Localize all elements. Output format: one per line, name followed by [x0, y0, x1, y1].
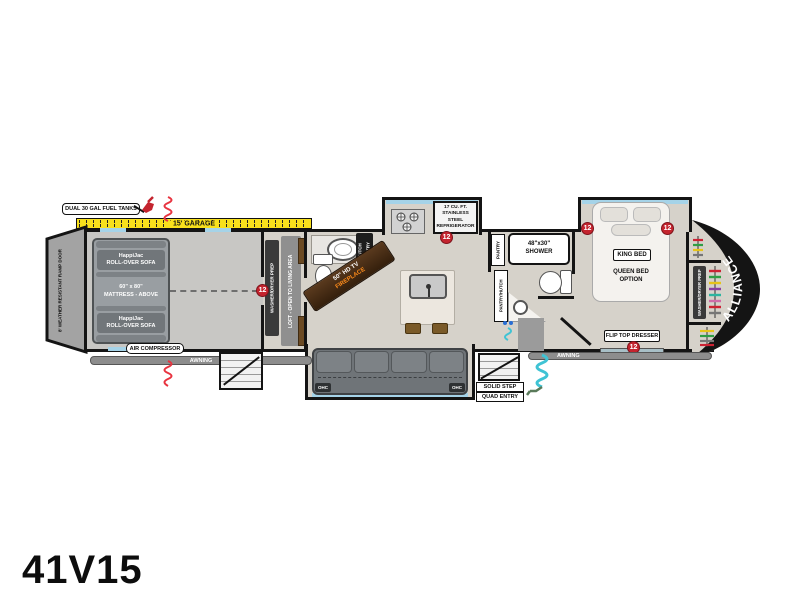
corner-sink: [513, 300, 528, 315]
sofa-top-label: HappiJac ROLL-OVER SOFA: [97, 250, 165, 270]
mattress-line1: 60" x 80": [119, 284, 143, 291]
pantry-hutch-label: PANTRY/HUTCH: [494, 271, 508, 321]
stove-burners-icon: [391, 209, 425, 234]
sofa-cushion: [316, 351, 352, 373]
wall-segment: [686, 232, 689, 349]
sofa-bottom-label: HappiJac ROLL-OVER SOFA: [97, 313, 165, 333]
toilet-tank: [313, 254, 333, 265]
steps-diagonal: [480, 356, 518, 379]
entry-label-line2: QUAD ENTRY: [476, 392, 524, 402]
stool: [405, 323, 421, 334]
sofa-cushion: [354, 351, 390, 373]
wall-segment: [304, 232, 307, 278]
awning-left: AWNING: [90, 356, 312, 365]
sofa-top-line1: HappiJac: [119, 253, 143, 260]
spring-icon: [162, 196, 175, 222]
ramp-door-label: 8' WEATHER RESISTANT RAMP DOOR: [50, 240, 70, 342]
slide-marker: 12: [256, 284, 269, 297]
sofa-cushions: [316, 351, 464, 373]
sofa-cushion: [391, 351, 427, 373]
spring-icon: [162, 360, 175, 388]
water-hose-icon: [520, 353, 560, 397]
pillow: [600, 207, 628, 222]
model-title: 41V15: [22, 548, 143, 593]
faucet-icon: [428, 288, 430, 297]
pantry-label: PANTRY: [491, 235, 505, 265]
sofa-cushion: [429, 351, 465, 373]
pillow: [633, 207, 661, 222]
utility-hookup-icon: [501, 320, 515, 346]
washer-dryer-prep-label-bedroom: WASHER/DRYER PREP: [693, 267, 706, 318]
queen-line2: OPTION: [619, 276, 642, 284]
pillow: [611, 224, 651, 236]
entry-mat: [518, 318, 544, 351]
sofa-bolster: [96, 335, 166, 342]
slide-marker: 12: [661, 222, 674, 235]
shower-line2: SHOWER: [526, 249, 553, 257]
garage-steps: [219, 352, 263, 390]
sofa-divider: [96, 272, 166, 277]
mattress-label: 60" x 80" MATTRESS - ABOVE: [97, 279, 165, 304]
wall-segment: [261, 232, 264, 277]
king-bed-label: KING BED: [613, 249, 651, 261]
fridge-line2: STAINLESS STEEL: [435, 211, 476, 224]
air-compressor-label: AIR COMPRESSOR: [126, 343, 184, 354]
entry-steps: [478, 353, 520, 381]
entry-label-line1: SOLID STEP: [476, 382, 524, 392]
slide-accent: [205, 228, 231, 232]
wall-segment: [538, 296, 574, 299]
shower-line1: 48"x30": [528, 241, 550, 249]
bath-sink-basin: [334, 243, 352, 256]
floorplan-canvas: 15' GARAGE DUAL 30 GAL FUEL TANKS 8' WEA…: [0, 0, 800, 600]
wall-segment: [261, 305, 264, 349]
fridge-line3: REFRIGERATOR: [437, 224, 475, 230]
fuel-tanks-label: DUAL 30 GAL FUEL TANKS: [62, 203, 140, 215]
slide-marker: 12: [581, 222, 594, 235]
mattress-line2: MATTRESS - ABOVE: [104, 292, 158, 299]
sofa-bottom-line1: HappiJac: [119, 316, 143, 323]
sofa-top-line2: ROLL-OVER SOFA: [107, 260, 156, 267]
ohc-left-label: OHC: [315, 383, 331, 392]
sofa-seat-dash: [318, 377, 462, 378]
stool: [432, 323, 448, 334]
wall-segment: [572, 232, 575, 274]
queen-option-label: QUEEN BED OPTION: [602, 265, 660, 287]
garage-length-label: 15' GARAGE: [170, 220, 218, 227]
sofa-bottom-line2: ROLL-OVER SOFA: [107, 323, 156, 330]
steps-diagonal: [223, 357, 260, 386]
queen-line1: QUEEN BED: [613, 268, 649, 276]
toilet-bowl: [539, 271, 562, 294]
slide-marker: 12: [440, 231, 453, 244]
mattress-outline-dash: [170, 290, 258, 292]
closet-hangers-icon: [696, 327, 718, 347]
refrigerator: 17 CU. FT. STAINLESS STEEL REFRIGERATOR: [433, 201, 478, 234]
ohc-right-label: OHC: [449, 383, 465, 392]
wall-segment: [689, 322, 721, 325]
wall-segment: [689, 260, 721, 263]
closet-hangers-icon: [707, 266, 723, 318]
wall-segment: [304, 302, 307, 349]
sofa-bolster: [96, 241, 166, 248]
closet-hangers-icon: [691, 236, 705, 258]
awning-left-label: AWNING: [190, 358, 213, 364]
fuel-nozzle-icon: [138, 195, 158, 215]
shower: 48"x30" SHOWER: [508, 233, 570, 265]
slide-accent: [100, 228, 126, 232]
sofa-divider: [96, 306, 166, 311]
